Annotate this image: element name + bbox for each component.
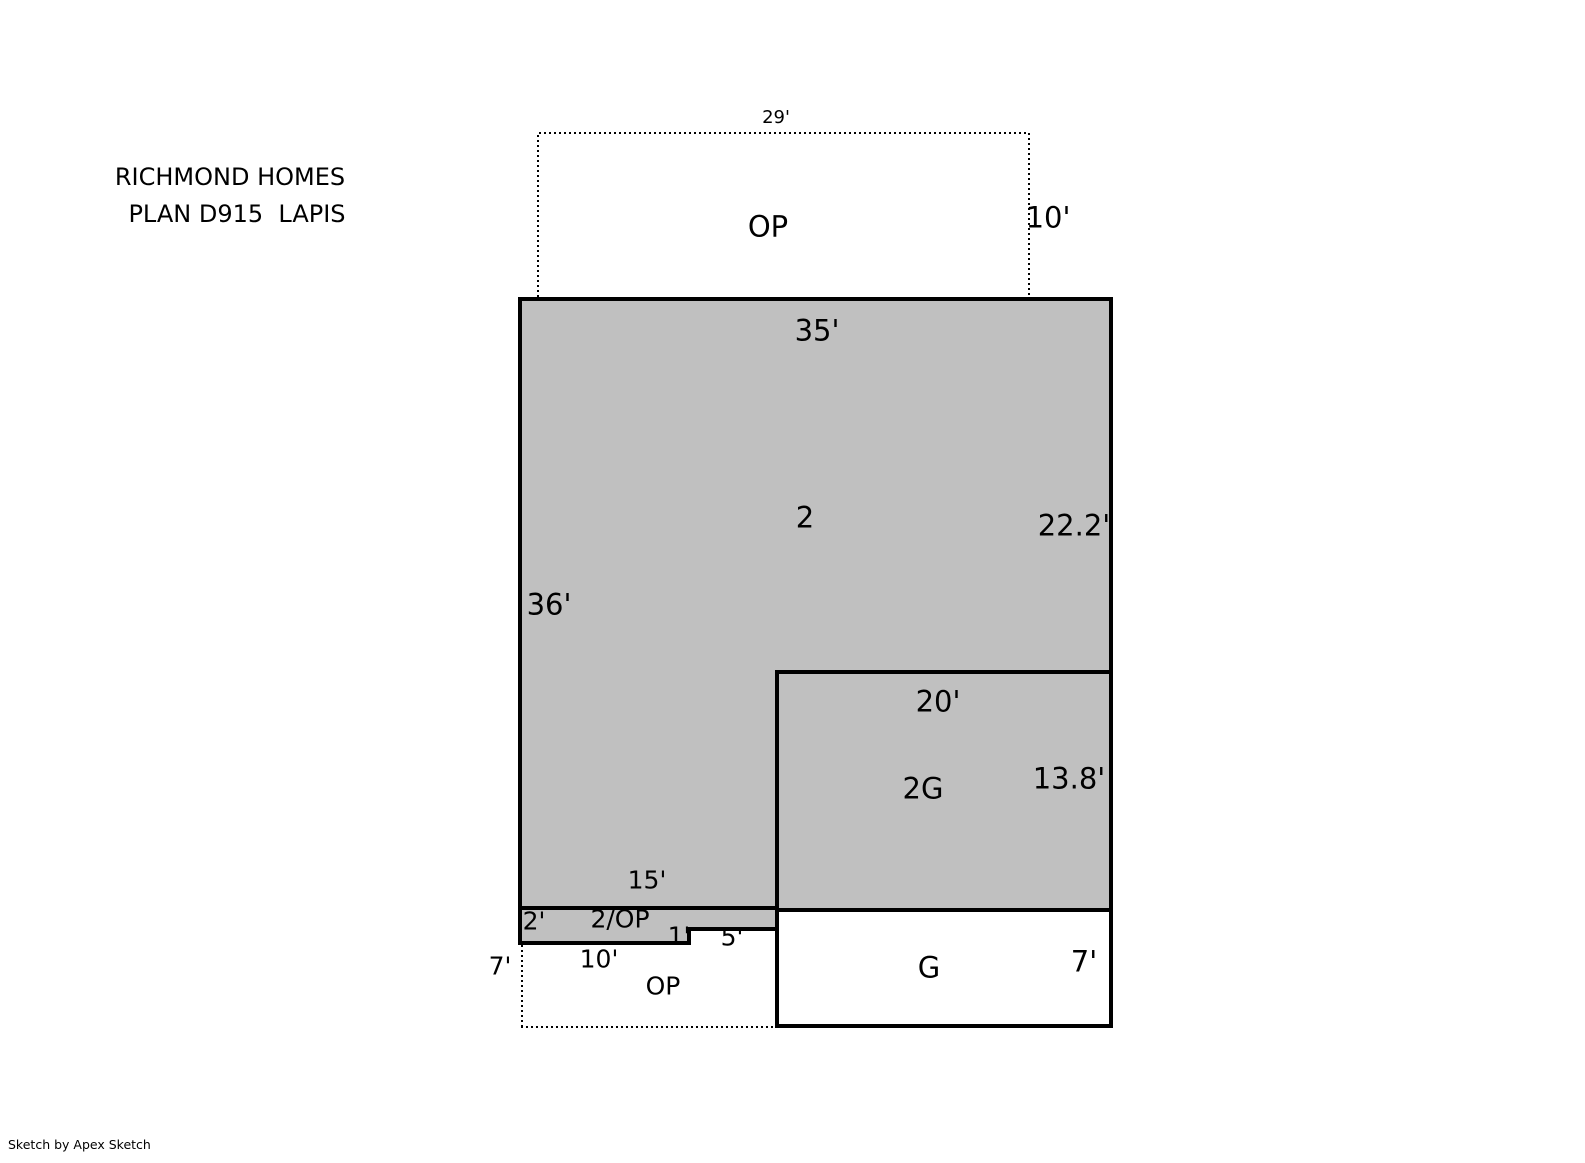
second-floor-area-shape <box>520 299 1111 910</box>
dim-garage-2g-right: 13.8' <box>1033 765 1106 794</box>
dim-strip-bottom: 10' <box>580 947 619 972</box>
dim-lower-porch-left: 7' <box>489 954 512 979</box>
dim-second-floor-right: 22.2' <box>1038 512 1111 541</box>
dim-garage-right: 7' <box>1071 948 1097 977</box>
plan-title-line2: PLAN D915 LAPIS <box>128 202 345 226</box>
dim-upper-porch-depth: 10' <box>1026 204 1071 233</box>
lower-porch-label: OP <box>646 974 681 999</box>
floorplan-sketch-page: RICHMOND HOMES PLAN D915 LAPIS 29' OP 10… <box>0 0 1585 1163</box>
dim-strip-left: 2' <box>523 909 546 934</box>
dim-strip-segment: 5' <box>721 925 744 950</box>
sketch-credit: Sketch by Apex Sketch <box>8 1139 151 1152</box>
dim-second-floor-top: 35' <box>795 317 840 346</box>
dim-second-floor-bottom-segment: 15' <box>628 868 667 893</box>
garage-area-shape <box>777 910 1111 1026</box>
dim-upper-porch-width: 29' <box>762 109 790 127</box>
plan-title-line1: RICHMOND HOMES <box>115 165 345 189</box>
garage-label: G <box>918 954 940 983</box>
upper-porch-label: OP <box>748 213 788 242</box>
dim-strip-step: 1' <box>668 924 691 949</box>
garage-2g-label: 2G <box>903 775 944 804</box>
dim-garage-2g-top: 20' <box>916 688 961 717</box>
second-floor-label: 2 <box>796 504 814 533</box>
dim-second-floor-left: 36' <box>527 591 572 620</box>
strip-label: 2/OP <box>590 907 649 932</box>
